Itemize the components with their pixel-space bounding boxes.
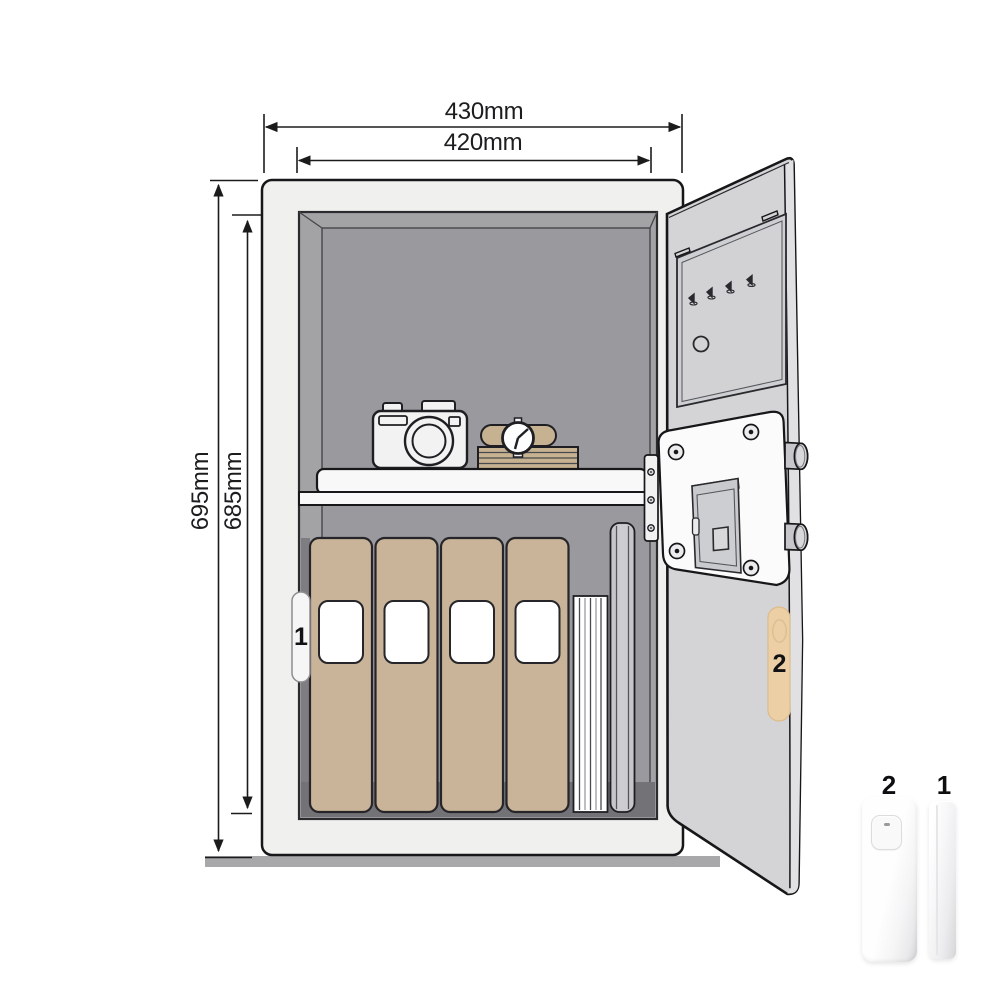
paper-stack [574,596,608,812]
binder [310,538,372,812]
magnet-ridge [936,805,938,955]
safe-dimension-diagram: 430mm 420mm 695mm 685mm 1 2 2 1 [0,0,1001,1001]
binder [441,538,503,812]
outer-height-dimension-label: 695mm [189,441,213,541]
floor-line [205,856,720,867]
safe-door [659,158,808,894]
hinge [645,455,659,541]
lock-mechanism [659,412,790,585]
door-sensor-marker: 2 [767,609,792,719]
sensor-button [871,815,902,850]
inner-height-dimension-label: 685mm [222,441,246,541]
main-sensor-product-label: 2 [872,770,906,800]
outer-width-dimension-label: 430mm [274,100,694,124]
magnet-sensor-photo [929,801,956,959]
magnet-sensor-product-label: 1 [928,770,960,800]
battery-compartment [692,479,741,574]
folder [611,523,635,812]
binder [507,538,569,812]
sensor-led [884,823,890,826]
camera-icon [373,401,467,468]
main-sensor-photo [862,797,917,962]
interior-sensor-marker: 1 [290,594,312,680]
panel-hole [694,337,709,352]
shelf-lip [299,492,657,505]
battery-latch [693,518,700,535]
safe-body [262,180,683,855]
inner-width-dimension-label: 420mm [306,131,660,155]
shelf [317,469,647,494]
binder [376,538,438,812]
